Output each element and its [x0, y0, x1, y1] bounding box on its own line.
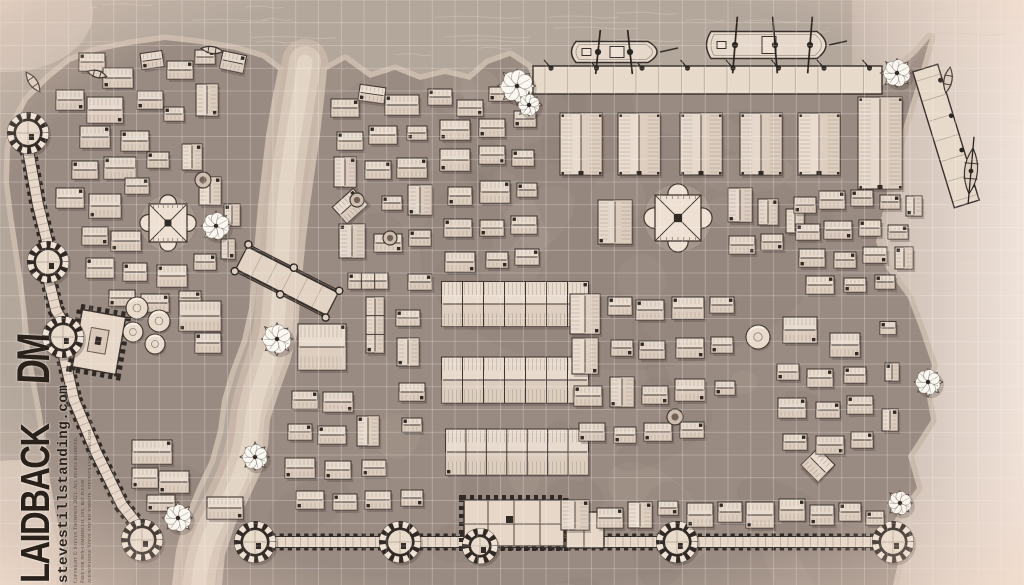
logo-laidback-text: LAIDBACK: [15, 425, 56, 583]
copyright-line-3: acknowledge Steve and his website, steve…: [88, 387, 93, 583]
city-map-illustration: [0, 0, 1024, 585]
logo-website-text: stevestillstanding.com: [57, 387, 71, 583]
copyright-line-2: Free for non-commercial use, but please: [81, 387, 86, 583]
map-canvas: LAIDBACKDM stevestillstanding.com Copyri…: [0, 0, 1024, 585]
copyright-line-1: Copyright © Steven Thompson 2021. All ri…: [74, 387, 79, 583]
logo-block: LAIDBACKDM stevestillstanding.com Copyri…: [10, 387, 93, 583]
logo-dm-text: DM: [10, 334, 56, 385]
logo-title: LAIDBACKDM: [10, 387, 56, 583]
sepia-tint: [0, 0, 1024, 585]
copyright-text: Copyright © Steven Thompson 2021. All ri…: [74, 387, 93, 583]
